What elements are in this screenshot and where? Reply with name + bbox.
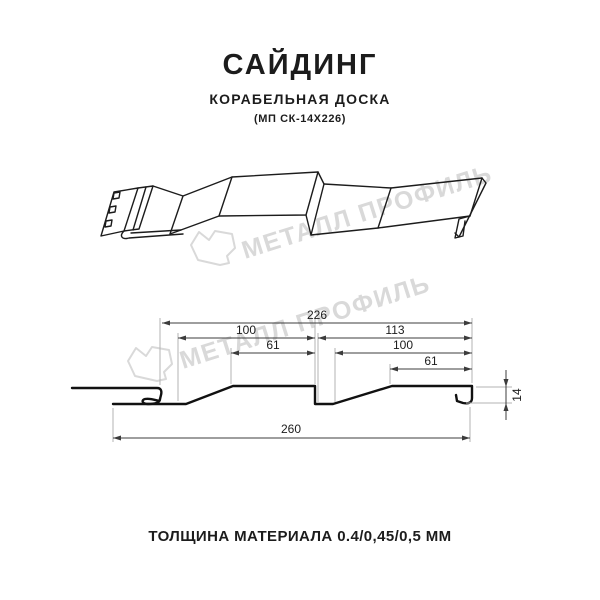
lock-fold-line	[133, 187, 146, 230]
watermark-text: МЕТАЛЛ ПРОФИЛЬ	[238, 159, 496, 264]
dim-profile-height: 14	[510, 388, 524, 402]
brand-logo-icon	[191, 231, 235, 265]
board1-flat	[153, 186, 183, 234]
material-thickness-note: ТОЛЩИНА МАТЕРИАЛА 0.4/0,45/0,5 ММ	[0, 528, 600, 545]
dim-right-board: 113	[385, 323, 404, 337]
board1-top	[219, 172, 318, 216]
dim-left-board: 100	[236, 323, 256, 337]
dim-overall-bottom: 260	[281, 422, 301, 436]
nail-hole	[105, 220, 112, 227]
extension-lines	[113, 318, 512, 442]
dim-right-flat: 61	[424, 354, 438, 368]
adjacent-panel-edge	[72, 388, 161, 399]
dim-right-inner: 100	[393, 338, 413, 352]
cross-section	[72, 386, 472, 404]
technical-drawing: МЕТАЛЛ ПРОФИЛЬ МЕТАЛЛ ПРОФИЛЬ	[0, 0, 600, 600]
dim-left-flat: 61	[266, 338, 280, 352]
product-spec-page: { "header": { "title": "САЙДИНГ", "subti…	[0, 0, 600, 600]
lock-fold	[124, 186, 153, 231]
watermark-upper: МЕТАЛЛ ПРОФИЛЬ	[191, 159, 496, 265]
profile-outline	[113, 386, 472, 404]
nail-hole	[109, 206, 116, 213]
nail-hole	[113, 192, 120, 199]
brand-logo-icon	[128, 347, 172, 381]
dim-overall-top: 226	[307, 308, 327, 322]
